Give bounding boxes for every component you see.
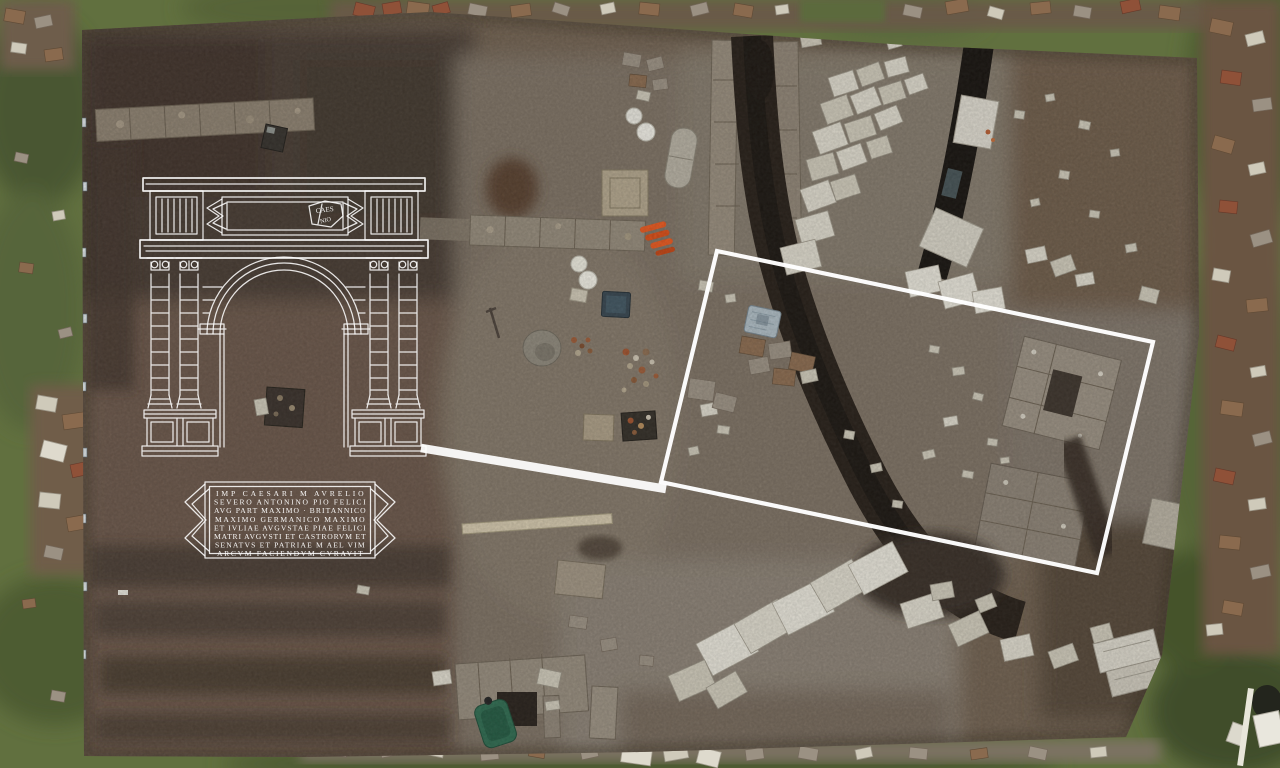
- site-aerial-view: CAES NIO: [0, 0, 1280, 768]
- inscription-line: ARCVM FACIENDVM CVRAVIT: [217, 549, 363, 558]
- inscription-tabula-ansata: IMP CAESARI M AVRELIO SEVERO ANTONINO PI…: [185, 482, 395, 558]
- excavation-area: [60, 0, 1220, 768]
- excavation-aerial-photo: CAES NIO: [0, 0, 1280, 768]
